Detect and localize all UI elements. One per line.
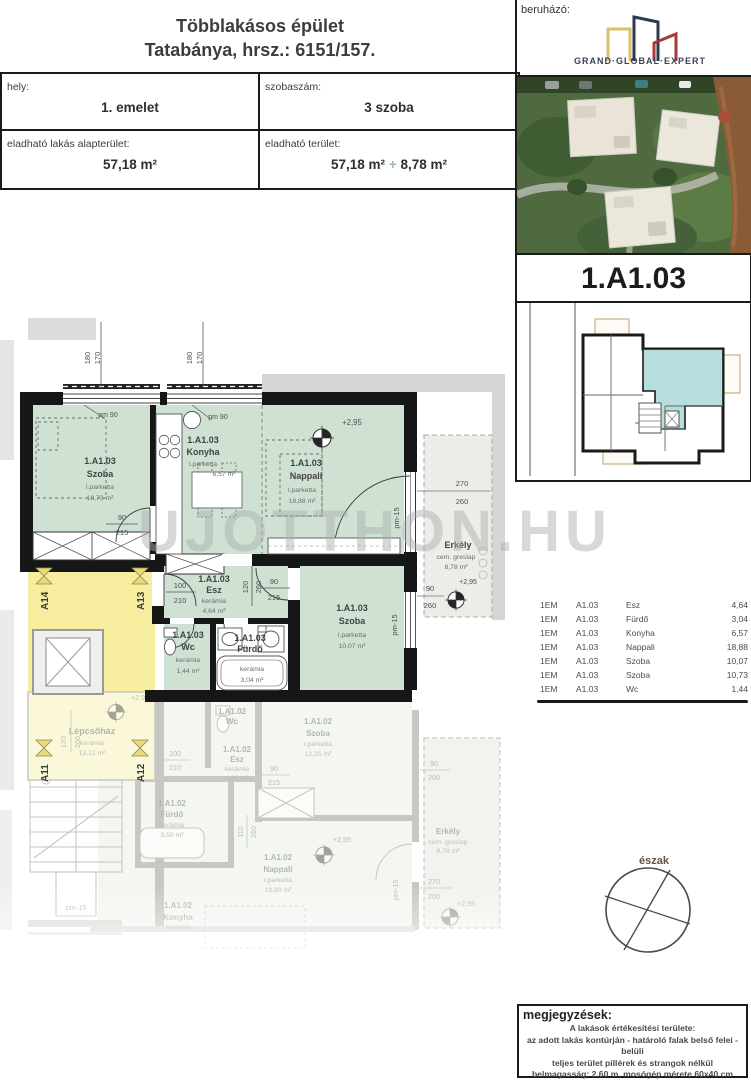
room-label: 3,50 m² — [160, 832, 184, 839]
cell-hely: hely: 1. emelet — [2, 74, 260, 131]
row-floor: 1EM — [540, 682, 576, 696]
room-label: Erkély — [444, 540, 471, 550]
dim-label: 260 — [254, 581, 263, 594]
floorplan-drawing: 1.A1.02 Wc 100 210 1.A1.02 Esz kerámia 4… — [0, 310, 515, 980]
row-room: Fürdő — [626, 612, 710, 626]
terulet-value: 57,18 m² + 8,78 m² — [260, 157, 518, 172]
room-label: 1.A1.02 — [218, 707, 247, 716]
row-floor: 1EM — [540, 654, 576, 668]
table-row: 1EM A1.03 Szoba 10,73 — [540, 668, 748, 682]
row-area: 10,73 — [710, 668, 748, 682]
room-label: Erkély — [436, 827, 461, 836]
room-label: cem. greslap — [429, 839, 468, 846]
row-area: 18,88 — [710, 640, 748, 654]
floorplan-sheet: Többlakásos épület Tatabánya, hrsz.: 615… — [0, 0, 751, 1080]
row-area: 3,04 — [710, 612, 748, 626]
unit-id-box: 1.A1.03 — [515, 253, 751, 305]
room-label: 3,04 m² — [240, 677, 264, 684]
room-label: Fürdő — [161, 810, 184, 819]
room-label: Szoba — [306, 729, 330, 738]
notes-line: A lakások értékesítési területe: — [523, 1023, 742, 1035]
cell-terulet: eladható terület: 57,18 m² + 8,78 m² — [260, 131, 518, 188]
room-label: l.parketta — [338, 632, 366, 639]
dim-label: 120 — [59, 736, 68, 748]
row-unit: A1.03 — [576, 682, 626, 696]
room-label: 4,86 m² — [225, 775, 249, 782]
notes-line: teljes terület pillérek és strangok nélk… — [523, 1058, 742, 1070]
dim-label: 260 — [424, 601, 437, 610]
window — [167, 384, 262, 405]
dim-label: 110 — [236, 826, 245, 837]
alapterulet-value: 57,18 m² — [2, 157, 258, 172]
dim-label: 170 — [93, 352, 102, 365]
dim-label: 120 — [241, 581, 250, 594]
balcony-erkely: 270 260 Erkély cem. greslap 8,78 m² +2,9… — [412, 435, 492, 617]
table-underline — [537, 700, 748, 703]
room-label: 10,73 m² — [87, 495, 115, 502]
row-unit: A1.03 — [576, 626, 626, 640]
terulet-main: 57,18 m² — [331, 157, 385, 172]
dim-label: 180 — [83, 352, 92, 365]
room-label: 1.A1.03 — [336, 603, 368, 613]
dim-label: 215 — [116, 528, 129, 537]
room-label: 13,12 m² — [79, 750, 107, 757]
room-label: 8,78 m² — [444, 564, 468, 571]
room-label: 10,07 m² — [339, 643, 367, 650]
info-table: hely: 1. emelet szobaszám: 3 szoba eladh… — [0, 72, 520, 190]
room-label: 1,44 m² — [176, 668, 200, 675]
room-label: kerámia — [176, 657, 200, 664]
hely-value: 1. emelet — [2, 100, 258, 115]
title-line2: Tatabánya, hrsz.: 6151/157. — [30, 38, 490, 62]
szobaszam-value: 3 szoba — [260, 100, 518, 115]
developer-logo-text: GRAND·GLOBAL·EXPERT — [545, 56, 735, 66]
level-label: +2,95 — [333, 835, 351, 844]
room-label: 1.A1.03 — [290, 458, 322, 468]
room-label: Fürdő — [237, 644, 263, 654]
plan-fade — [0, 885, 515, 980]
dim-label: pm-15 — [392, 507, 401, 528]
room-label: l.parketta — [189, 461, 217, 468]
row-unit: A1.03 — [576, 640, 626, 654]
row-room: Szoba — [626, 654, 710, 668]
room-label: 12,25 m² — [305, 751, 333, 758]
table-row: 1EM A1.03 Wc 1,44 — [540, 682, 748, 696]
siteplan-box — [515, 301, 751, 482]
room-label: 1.A1.02 — [264, 853, 293, 862]
wardrobe — [166, 554, 224, 574]
dim-label: 270 — [456, 479, 469, 488]
room-label: l.parketta — [264, 877, 292, 884]
apt-label: A13 — [136, 591, 147, 610]
row-room: Szoba — [626, 668, 710, 682]
row-unit: A1.03 — [576, 668, 626, 682]
row-floor: 1EM — [540, 598, 576, 612]
room-label: 8,78 m² — [436, 848, 460, 855]
wardrobe — [33, 532, 150, 560]
room-label: 1.A1.03 — [172, 630, 204, 640]
room-label: 1.A1.03 — [187, 435, 219, 445]
dim-label: 100 — [174, 581, 187, 590]
sideboard — [268, 538, 400, 554]
room-label: kerámia — [240, 666, 264, 673]
row-floor: 1EM — [540, 626, 576, 640]
hely-label: hely: — [7, 81, 29, 93]
apt-label: A11 — [40, 764, 51, 782]
room-label: 18,88 m² — [289, 498, 317, 505]
dim-label: 210 — [174, 596, 187, 605]
table-row: 1EM A1.03 Konyha 6,57 — [540, 626, 748, 640]
dim-label: 170 — [195, 352, 204, 365]
level-label: +2,95 — [459, 579, 477, 586]
room-label: l.parketta — [304, 741, 332, 748]
table-row: 1EM A1.03 Esz 4,64 — [540, 598, 748, 612]
notes-box: megjegyzések: A lakások értékesítési ter… — [517, 1004, 748, 1078]
terulet-extra: 8,78 m² — [400, 157, 447, 172]
room-label: Nappali — [264, 865, 293, 874]
room-label: cem. greslap — [437, 554, 476, 561]
szobaszam-label: szobaszám: — [265, 81, 321, 93]
room-label: 1.A1.02 — [158, 799, 187, 808]
row-floor: 1EM — [540, 668, 576, 682]
north-arrow: észak — [596, 852, 706, 960]
terulet-label: eladható terület: — [265, 138, 340, 150]
dim-label: 260 — [456, 497, 469, 506]
aerial-photo — [517, 77, 751, 253]
room-label: Konyha — [186, 447, 220, 457]
dim-label: 90 — [270, 577, 278, 586]
siteplan-drawing — [517, 303, 746, 476]
sink — [184, 412, 201, 429]
room-label: 1.A1.02 — [304, 717, 333, 726]
dim-label: 215 — [268, 593, 281, 602]
room-label: 1.A1.03 — [198, 574, 230, 584]
terulet-plus: + — [389, 157, 397, 172]
room-list-table: 1EM A1.03 Esz 4,64 1EM A1.03 Fürdő 3,04 … — [540, 598, 748, 696]
row-unit: A1.03 — [576, 612, 626, 626]
dim-label: 260 — [73, 736, 82, 748]
dim-label: 90 — [118, 513, 126, 522]
dim-label: 100 — [169, 749, 181, 758]
alapterulet-label: eladható lakás alapterület: — [7, 138, 130, 150]
row-area: 1,44 — [710, 682, 748, 696]
room-label: 1.A1.02 — [223, 745, 252, 754]
row-unit: A1.03 — [576, 654, 626, 668]
dim-label: 260 — [428, 773, 440, 782]
title-line1: Többlakásos épület — [30, 14, 490, 38]
apt-label: A12 — [136, 763, 147, 782]
bathtub — [217, 656, 287, 690]
room-label: 1.A1.03 — [234, 633, 266, 643]
table-row: 1EM A1.03 Nappali 18,88 — [540, 640, 748, 654]
room-label: 4,64 m² — [202, 608, 226, 615]
room-label: 6,57 m² — [212, 471, 236, 478]
row-area: 4,64 — [710, 598, 748, 612]
dim-label: 210 — [169, 763, 181, 772]
room-label: 1.A1.03 — [84, 456, 116, 466]
notes-line: az adott lakás kontúrján - határoló fala… — [523, 1035, 742, 1058]
row-floor: 1EM — [540, 640, 576, 654]
dim-label: pm 90 — [98, 412, 118, 419]
row-unit: A1.03 — [576, 598, 626, 612]
apt-label: A14 — [40, 591, 51, 610]
row-floor: 1EM — [540, 612, 576, 626]
elevator — [33, 630, 103, 694]
room-label: Esz — [230, 755, 244, 764]
room-label: Nappali — [290, 471, 323, 481]
row-room: Nappali — [626, 640, 710, 654]
cell-alapterulet: eladható lakás alapterület: 57,18 m² — [2, 131, 260, 188]
dim-label: pm-15 — [390, 614, 399, 635]
dim-label: 90 — [270, 764, 278, 773]
dim-label: 215 — [268, 778, 280, 787]
level-label: +2,95 — [342, 418, 362, 427]
room-label: Szoba — [87, 469, 114, 479]
dim-label: pm 90 — [208, 414, 228, 421]
dim-label: 260 — [249, 826, 258, 838]
dim-label: 180 — [185, 352, 194, 365]
row-room: Konyha — [626, 626, 710, 640]
room-label: l.parketta — [288, 487, 316, 494]
table-row: 1EM A1.03 Szoba 10,07 — [540, 654, 748, 668]
dim-label: 90 — [430, 759, 438, 768]
room-label: Esz — [206, 585, 222, 595]
room-label: Wc — [226, 717, 239, 726]
room-label: Szoba — [339, 616, 366, 626]
dim-label: 270 — [428, 877, 440, 886]
row-area: 10,07 — [710, 654, 748, 668]
table-row: 1EM A1.03 Fürdő 3,04 — [540, 612, 748, 626]
row-area: 6,57 — [710, 626, 748, 640]
room-label: Wc — [181, 642, 195, 652]
notes-body: A lakások értékesítési területe: az adot… — [523, 1023, 742, 1080]
window — [63, 384, 160, 405]
row-room: Esz — [626, 598, 710, 612]
room-label: Lépcsőház — [69, 726, 116, 736]
room-label: kerámia — [160, 822, 184, 829]
room-label: kerámia — [225, 766, 249, 773]
room-label: l.parketta — [86, 484, 114, 491]
dim-label: 90 — [426, 584, 434, 593]
notes-title: megjegyzések: — [523, 1008, 742, 1022]
north-label: észak — [639, 855, 670, 867]
page-title: Többlakásos épület Tatabánya, hrsz.: 615… — [30, 14, 490, 62]
room-label: kerámia — [202, 598, 226, 605]
cell-szobaszam: szobaszám: 3 szoba — [260, 74, 518, 131]
room-label: kerámia — [80, 740, 104, 747]
row-room: Wc — [626, 682, 710, 696]
notes-line: belmagasság: 2,60 m, mosógép mérete 60x4… — [523, 1069, 742, 1080]
